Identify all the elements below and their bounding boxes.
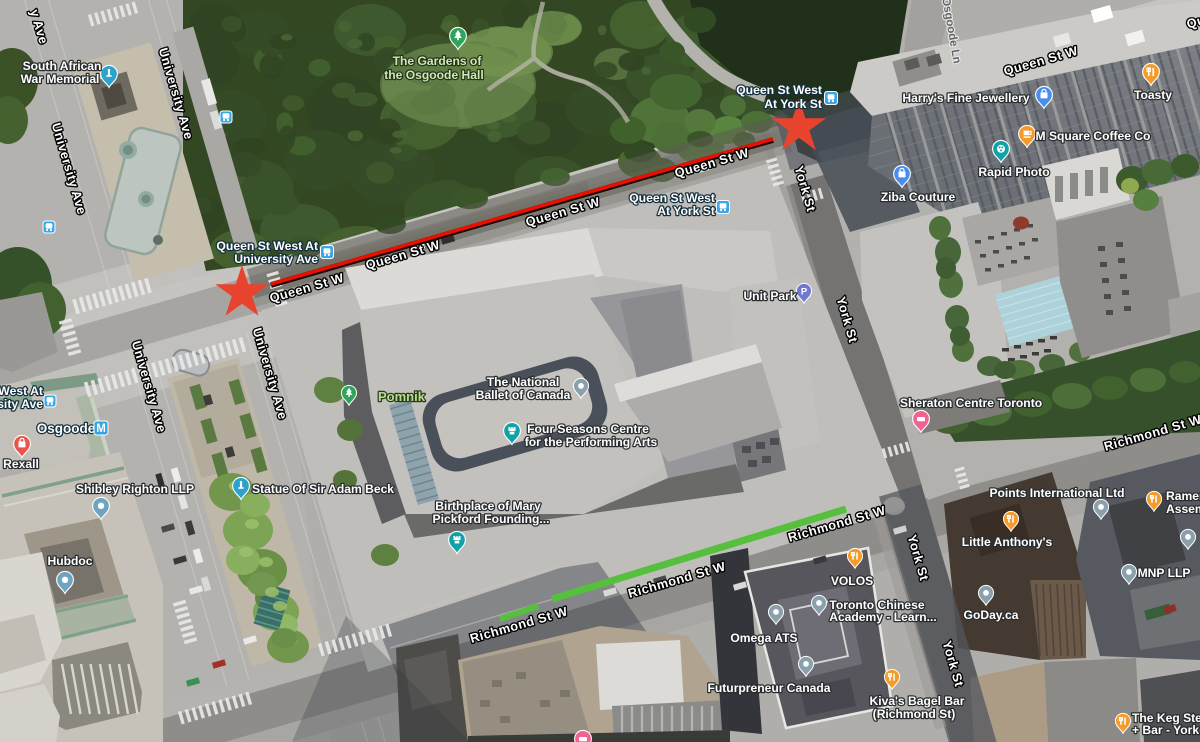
svg-text:University Ave: University Ave (234, 252, 318, 266)
svg-text:Toasty: Toasty (1134, 88, 1172, 102)
svg-text:Omega ATS: Omega ATS (730, 631, 797, 645)
svg-text:Ballet of Canada: Ballet of Canada (476, 388, 571, 402)
svg-text:VOLOS: VOLOS (831, 574, 873, 588)
svg-text:Points International Ltd: Points International Ltd (989, 486, 1124, 500)
svg-text:Pomnik: Pomnik (378, 389, 426, 404)
svg-text:+ Bar - York: + Bar - York (1132, 723, 1199, 737)
svg-text:Osgoode: Osgoode (37, 421, 96, 436)
svg-text:South African: South African (23, 59, 102, 73)
svg-text:sity Ave: sity Ave (0, 397, 43, 411)
svg-text:Statue Of Sir Adam Beck: Statue Of Sir Adam Beck (252, 482, 394, 496)
svg-text:the Osgoode Hall: the Osgoode Hall (384, 68, 483, 82)
svg-text:Harry's Fine Jewellery: Harry's Fine Jewellery (902, 91, 1030, 105)
svg-text:The Gardens of: The Gardens of (393, 54, 483, 68)
svg-text:M: M (96, 423, 106, 435)
svg-text:The National: The National (487, 375, 560, 389)
svg-text:Kiva's Bagel Bar: Kiva's Bagel Bar (870, 694, 965, 708)
svg-text:Sheraton Centre Toronto: Sheraton Centre Toronto (900, 396, 1042, 410)
svg-text:Queen St West: Queen St West (736, 83, 822, 97)
svg-text:Pickford Founding...: Pickford Founding... (433, 512, 550, 526)
svg-text:Little Anthony's: Little Anthony's (962, 535, 1053, 549)
svg-text:Four Seasons Centre: Four Seasons Centre (527, 422, 649, 436)
svg-text:Assemb: Assemb (1166, 502, 1200, 516)
svg-text:War Memorial: War Memorial (21, 72, 100, 86)
svg-text:for the Performing Arts: for the Performing Arts (525, 435, 658, 449)
svg-text:Ziba Couture: Ziba Couture (881, 190, 956, 204)
svg-text:P: P (801, 286, 807, 297)
svg-text:Ramen: Ramen (1166, 489, 1200, 503)
svg-text:Academy - Learn...: Academy - Learn... (829, 610, 937, 624)
svg-text:Queen St West: Queen St West (629, 191, 715, 205)
svg-text:Shibley Righton LLP: Shibley Righton LLP (76, 482, 194, 496)
svg-text:Hubdoc: Hubdoc (47, 554, 92, 568)
svg-text:At York St: At York St (764, 97, 822, 111)
svg-text:Queen St West At: Queen St West At (216, 239, 318, 253)
svg-text:Rapid Photo: Rapid Photo (978, 165, 1049, 179)
svg-text:West At: West At (0, 384, 43, 398)
svg-text:MNP LLP: MNP LLP (1138, 566, 1191, 580)
svg-text:Futurpreneur Canada: Futurpreneur Canada (708, 681, 831, 695)
svg-text:(Richmond St): (Richmond St) (873, 707, 956, 721)
svg-text:Unit Park: Unit Park (743, 289, 796, 303)
svg-text:Rexall: Rexall (3, 457, 39, 471)
svg-text:Birthplace of Mary: Birthplace of Mary (435, 499, 541, 513)
svg-text:M Square Coffee Co: M Square Coffee Co (1036, 129, 1151, 143)
svg-text:GoDay.ca: GoDay.ca (964, 608, 1019, 622)
svg-text:At York St: At York St (657, 204, 715, 218)
